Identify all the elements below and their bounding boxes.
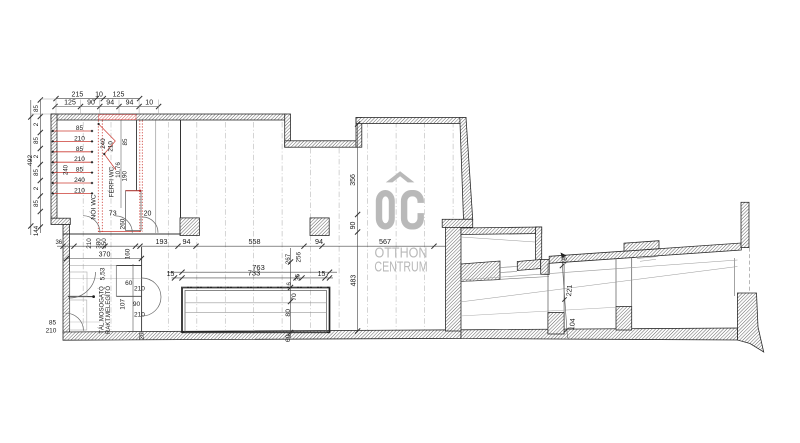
svg-text:350: 350	[101, 238, 108, 249]
svg-text:60: 60	[125, 280, 133, 287]
svg-text:NÓI WC: NÓI WC	[89, 194, 98, 219]
svg-text:85: 85	[33, 137, 40, 144]
svg-text:221: 221	[566, 284, 574, 296]
svg-text:558: 558	[249, 237, 261, 246]
svg-text:36: 36	[55, 240, 62, 246]
svg-text:85: 85	[76, 167, 84, 174]
svg-text:190: 190	[121, 170, 128, 181]
svg-text:210: 210	[46, 328, 57, 335]
svg-text:5,53: 5,53	[100, 267, 107, 280]
svg-text:210: 210	[74, 156, 85, 163]
svg-text:94: 94	[106, 99, 114, 106]
svg-text:94: 94	[315, 237, 323, 246]
svg-text:733: 733	[248, 269, 261, 278]
svg-text:210: 210	[74, 187, 85, 194]
svg-text:20: 20	[144, 211, 152, 218]
svg-text:567: 567	[379, 237, 391, 246]
svg-text:240: 240	[100, 138, 107, 149]
svg-text:15: 15	[167, 271, 175, 278]
svg-text:85: 85	[122, 138, 129, 145]
svg-text:107: 107	[120, 298, 127, 309]
svg-text:94: 94	[126, 99, 134, 106]
svg-text:356: 356	[350, 174, 357, 186]
svg-text:73: 73	[109, 211, 117, 218]
svg-text:215: 215	[72, 91, 84, 98]
svg-text:60: 60	[285, 334, 292, 342]
svg-text:240: 240	[64, 164, 70, 175]
svg-text:80: 80	[285, 309, 292, 317]
svg-text:260: 260	[120, 218, 127, 229]
svg-text:210: 210	[74, 135, 85, 142]
svg-text:492: 492	[27, 155, 34, 167]
svg-text:256: 256	[295, 251, 302, 262]
svg-text:10: 10	[145, 99, 153, 106]
svg-text:104: 104	[569, 318, 577, 330]
svg-text:210: 210	[86, 238, 93, 249]
svg-text:2: 2	[33, 186, 40, 190]
svg-text:94: 94	[183, 237, 191, 246]
svg-text:193: 193	[156, 237, 168, 246]
svg-text:20: 20	[139, 332, 146, 340]
svg-text:267: 267	[285, 253, 292, 264]
svg-text:2: 2	[33, 122, 40, 126]
svg-text:370: 370	[99, 252, 111, 259]
svg-text:85: 85	[76, 125, 84, 132]
svg-text:210: 210	[107, 141, 114, 152]
svg-text:85: 85	[33, 169, 40, 176]
svg-text:125: 125	[64, 99, 76, 106]
svg-text:35: 35	[295, 273, 302, 281]
svg-text:85: 85	[33, 105, 40, 112]
svg-text:210: 210	[134, 286, 145, 293]
svg-text:125: 125	[113, 91, 125, 98]
svg-text:CENTRUM: CENTRUM	[374, 258, 427, 275]
svg-text:483: 483	[350, 275, 357, 287]
svg-text:90: 90	[350, 222, 357, 230]
svg-text:RAKT.MELEGÍTŐ: RAKT.MELEGÍTŐ	[105, 286, 112, 334]
svg-text:10: 10	[95, 91, 103, 98]
svg-text:85: 85	[49, 320, 57, 327]
svg-text:70: 70	[291, 293, 298, 301]
svg-text:TÁL.MOSOGATÓ: TÁL.MOSOGATÓ	[99, 286, 106, 334]
svg-text:6: 6	[286, 282, 293, 286]
svg-text:15: 15	[318, 271, 326, 278]
svg-text:90: 90	[87, 99, 95, 106]
svg-text:85: 85	[33, 200, 40, 207]
svg-text:240: 240	[74, 177, 85, 184]
svg-text:210: 210	[134, 312, 145, 319]
svg-text:85: 85	[76, 146, 84, 153]
svg-text:90: 90	[133, 301, 141, 308]
svg-text:160: 160	[124, 248, 131, 259]
svg-text:144: 144	[33, 225, 40, 236]
